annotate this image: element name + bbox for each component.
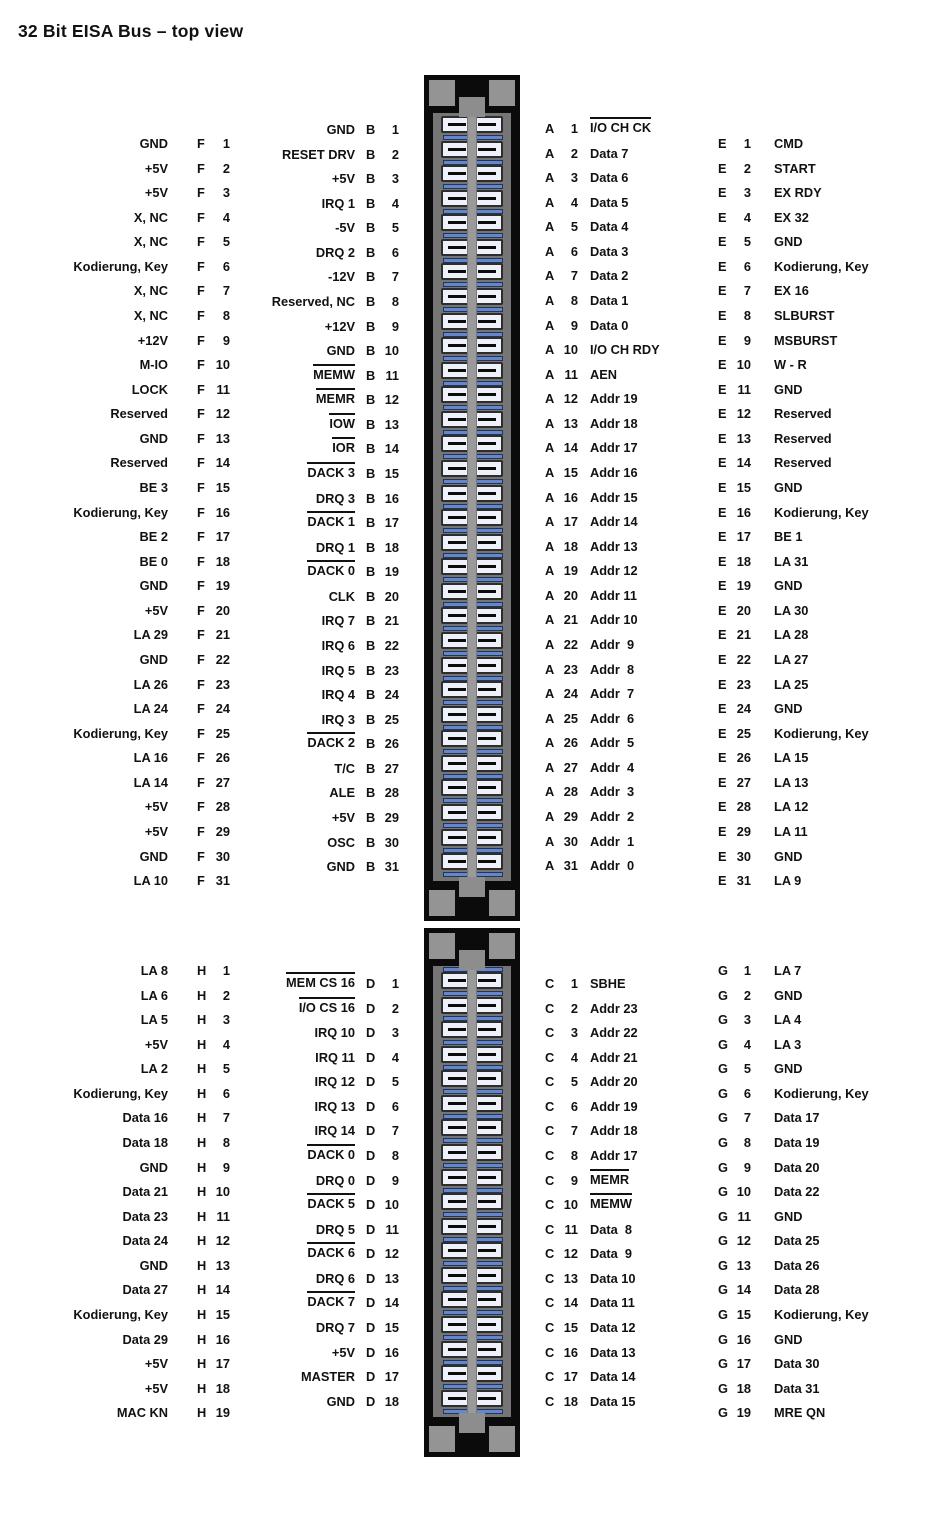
pin-id: G14 (718, 1282, 751, 1297)
pin-contact-dash (478, 172, 496, 175)
pin-row-number: 23 (737, 677, 751, 692)
pin-contact-dash (448, 344, 466, 347)
pin-id: E8 (718, 308, 751, 323)
pin-id: G8 (718, 1135, 751, 1150)
pin-contact-dash (448, 221, 466, 224)
pin-contact-dash (478, 492, 496, 495)
pin-id: G12 (718, 1233, 751, 1248)
pin-row-number: 14 (737, 1282, 751, 1297)
connector-segment-bottom (424, 928, 520, 1457)
pin-contact-dash (448, 1126, 466, 1129)
pin-id: E30 (718, 849, 751, 864)
pin-contact-dash (448, 1323, 466, 1326)
pin-contact-dash (478, 516, 496, 519)
pin-contact-dash (448, 1053, 466, 1056)
pin-contact-dash (478, 786, 496, 789)
pin-signal-label: Data 28 (774, 1282, 820, 1297)
pin-contact-dash (448, 492, 466, 495)
pin-contact-dash (448, 1176, 466, 1179)
pin-row-letter: G (718, 1110, 728, 1125)
pin-row-number: 16 (737, 1332, 751, 1347)
pin-signal-label: W - R (774, 357, 807, 372)
connector-tongue-top (459, 97, 485, 117)
pin-contact-dash (448, 713, 466, 716)
pin-contact-dash (478, 614, 496, 617)
pin-id: E19 (718, 578, 751, 593)
pin-contact-dash (448, 590, 466, 593)
pin-contact-dash (448, 541, 466, 544)
pin-row-number: 14 (737, 455, 751, 470)
pin-row-number: 12 (737, 406, 751, 421)
pin-row-letter: E (718, 234, 727, 249)
pin-contact-dash (478, 270, 496, 273)
pin-row-number: 26 (737, 750, 751, 765)
pin-id: G6 (718, 1086, 751, 1101)
pin-row-letter: E (718, 283, 727, 298)
pin-contact-dash (478, 1102, 496, 1105)
pin-contact-dash (448, 688, 466, 691)
pin-row-number: 20 (737, 603, 751, 618)
pin-id: E1 (718, 136, 751, 151)
pin-signal-label: LA 12 (774, 799, 808, 814)
pin-signal-label: MRE QN (774, 1405, 825, 1420)
pin-id: E2 (718, 161, 751, 176)
pin-contact-dash (448, 762, 466, 765)
pin-contact-dash (448, 1077, 466, 1080)
pin-id: E14 (718, 455, 751, 470)
pin-row-letter: G (718, 1061, 728, 1076)
pin-contact-dash (448, 1249, 466, 1252)
pin-row-letter: G (718, 1037, 728, 1052)
pin-row-number: 4 (744, 210, 751, 225)
pin-contact-dash (478, 1225, 496, 1228)
pin-signal-label: GND (774, 578, 802, 593)
pin-row-number: 18 (737, 1381, 751, 1396)
pin-contact-dash (448, 393, 466, 396)
pin-id: G7 (718, 1110, 751, 1125)
pin-signal-label: Kodierung, Key (774, 1307, 869, 1322)
pin-contact-dash (478, 1348, 496, 1351)
pin-id: E20 (718, 603, 751, 618)
pin-signal-label: Data 22 (774, 1184, 820, 1199)
pin-contact-dash (478, 639, 496, 642)
pin-row-letter: G (718, 1258, 728, 1273)
pin-id: E21 (718, 627, 751, 642)
pin-signal-label: LA 15 (774, 750, 808, 765)
pin-contact-dash (478, 1004, 496, 1007)
pin-id: E18 (718, 554, 751, 569)
pin-row-number: 17 (737, 1356, 751, 1371)
pin-signal-label: GND (774, 382, 802, 397)
pin-contact-dash (448, 811, 466, 814)
pin-row-number: 19 (737, 1405, 751, 1420)
pin-id: E27 (718, 775, 751, 790)
pin-row-number: 24 (737, 701, 751, 716)
key-pad (429, 1426, 455, 1452)
key-pad (429, 890, 455, 916)
pin-contact-dash (478, 1028, 496, 1031)
pin-row-letter: A (545, 121, 554, 136)
pin-contact-dash (448, 148, 466, 151)
pin-row-letter: E (718, 308, 727, 323)
pin-panel (433, 113, 511, 881)
pin-contact-dash (478, 320, 496, 323)
pin-row-letter: G (718, 1135, 728, 1150)
pin-signal-label: GND (774, 1061, 802, 1076)
pin-signal-label: LA 13 (774, 775, 808, 790)
pin-contact-dash (478, 148, 496, 151)
pin-signal-label: GND (774, 988, 802, 1003)
pin-contact-dash (448, 123, 466, 126)
pin-id: E31 (718, 873, 751, 888)
pin-row-letter: G (718, 1356, 728, 1371)
pin-id: E24 (718, 701, 751, 716)
pin-signal-label: LA 28 (774, 627, 808, 642)
pin-signal-label: START (774, 161, 816, 176)
pin-row-number: 21 (737, 627, 751, 642)
pin-contact-dash (478, 418, 496, 421)
pin-id: E11 (718, 382, 751, 397)
pin-row-letter: E (718, 652, 727, 667)
pin-row-letter: G (718, 963, 728, 978)
pin-contact-dash (448, 516, 466, 519)
pin-signal-label: Kodierung, Key (774, 505, 869, 520)
center-bar (467, 966, 477, 1417)
pin-row-number: 1 (744, 136, 751, 151)
pin-row-letter: E (718, 824, 727, 839)
pin-id: E23 (718, 677, 751, 692)
pin-contact-dash (478, 1249, 496, 1252)
center-bar (467, 113, 477, 881)
pin-id: E26 (718, 750, 751, 765)
pin-signal-label: Data 20 (774, 1160, 820, 1175)
pin-signal-label: EX 32 (774, 210, 809, 225)
connector-tongue-bottom (459, 1413, 485, 1433)
pin-row-number: 8 (744, 308, 751, 323)
pin-signal-label: Data 30 (774, 1356, 820, 1371)
pin-contact-dash (448, 664, 466, 667)
pin-id: E17 (718, 529, 751, 544)
pin-id: G10 (718, 1184, 751, 1199)
pin-row-number: 11 (737, 1209, 751, 1224)
pin-row-letter: G (718, 1184, 728, 1199)
connector-tongue-top (459, 950, 485, 970)
pin-row-letter: G (718, 1381, 728, 1396)
pin-row-letter: E (718, 603, 727, 618)
pin-contact-dash (448, 197, 466, 200)
pin-row-number: 1 (571, 121, 578, 136)
pin-contact-dash (478, 860, 496, 863)
pin-row-number: 16 (737, 505, 751, 520)
pin-row-letter: E (718, 529, 727, 544)
pin-row-letter: E (718, 480, 727, 495)
key-pad (429, 933, 455, 959)
pin-contact-dash (478, 737, 496, 740)
pin-contact-dash (448, 369, 466, 372)
pin-id: E28 (718, 799, 751, 814)
pin-signal-label: LA 7 (774, 963, 801, 978)
pin-contact-dash (478, 713, 496, 716)
pin-row-number: 3 (744, 185, 751, 200)
pin-row-letter: G (718, 1209, 728, 1224)
pin-signal-label: LA 31 (774, 554, 808, 569)
pin-signal-label: LA 27 (774, 652, 808, 667)
pin-id: G18 (718, 1381, 751, 1396)
pin-row-letter: G (718, 1233, 728, 1248)
pin-row-number: 15 (737, 1307, 751, 1322)
pin-contact-dash (478, 369, 496, 372)
pin-contact-dash (478, 123, 496, 126)
pin-contact-dash (478, 979, 496, 982)
key-pad (429, 80, 455, 106)
pin-contact-dash (448, 639, 466, 642)
pin-row-number: 29 (737, 824, 751, 839)
pin-signal-label: EX RDY (774, 185, 822, 200)
pin-row-letter: E (718, 627, 727, 642)
pin-contact-dash (478, 664, 496, 667)
pin-id: E9 (718, 333, 751, 348)
pin-contact-dash (448, 1151, 466, 1154)
pin-row-number: 31 (737, 873, 751, 888)
pin-row-letter: E (718, 799, 727, 814)
pin-id: E3 (718, 185, 751, 200)
pin-id: G13 (718, 1258, 751, 1273)
pin-row-letter: G (718, 1405, 728, 1420)
pin-contact-dash (478, 1176, 496, 1179)
pin-signal-label: Data 19 (774, 1135, 820, 1150)
pin-row-letter: G (718, 1086, 728, 1101)
pin-contact-dash (448, 172, 466, 175)
pin-row-letter: E (718, 677, 727, 692)
pin-id: E25 (718, 726, 751, 741)
pin-row-letter: E (718, 185, 727, 200)
pin-signal-label: Reserved (774, 455, 832, 470)
pin-id: G2 (718, 988, 751, 1003)
pin-id: G9 (718, 1160, 751, 1175)
pin-row-letter: G (718, 1332, 728, 1347)
pin-row-number: 10 (737, 1184, 751, 1199)
pin-signal-label: Data 31 (774, 1381, 820, 1396)
pin-contact-dash (478, 467, 496, 470)
pin-id: G19 (718, 1405, 751, 1420)
pin-row-letter: E (718, 554, 727, 569)
pin-row-number: 19 (737, 578, 751, 593)
pin-row-number: 3 (744, 1012, 751, 1027)
pin-contact-dash (448, 320, 466, 323)
pin-contact-dash (478, 590, 496, 593)
pin-signal-label: LA 30 (774, 603, 808, 618)
pin-contact-dash (448, 836, 466, 839)
pin-contact-dash (448, 270, 466, 273)
pin-row-number: 9 (744, 1160, 751, 1175)
pin-row-letter: E (718, 406, 727, 421)
pin-contact-dash (478, 1323, 496, 1326)
pin-row-number: 15 (737, 480, 751, 495)
pin-contact-dash (448, 1225, 466, 1228)
key-pad (489, 80, 515, 106)
pin-row-letter: E (718, 775, 727, 790)
pin-contact-dash (478, 1053, 496, 1056)
pin-row-number: 28 (737, 799, 751, 814)
pin-row-number: 6 (744, 259, 751, 274)
pin-row-letter: E (718, 357, 727, 372)
pin-signal-label: LA 4 (774, 1012, 801, 1027)
pin-row-letter: G (718, 1012, 728, 1027)
pin-signal-label: GND (774, 1332, 802, 1347)
pin-contact-dash (478, 688, 496, 691)
pin-row-number: 8 (744, 1135, 751, 1150)
connector-tongue-bottom (459, 877, 485, 897)
pin-id: E29 (718, 824, 751, 839)
pin-row-number: 12 (737, 1233, 751, 1248)
pin-row-number: 4 (744, 1037, 751, 1052)
pin-signal-label: GND (774, 234, 802, 249)
pin-row-number: 2 (744, 161, 751, 176)
pin-id: G15 (718, 1307, 751, 1322)
pin-signal-label: Kodierung, Key (774, 1086, 869, 1101)
pin-contact-dash (448, 1298, 466, 1301)
connector-segment-top (424, 75, 520, 921)
pin-signal-label: Kodierung, Key (774, 726, 869, 741)
key-pad (489, 1426, 515, 1452)
pin-contact-dash (448, 295, 466, 298)
pin-row-number: 27 (737, 775, 751, 790)
pin-contact-dash (478, 1151, 496, 1154)
pin-contact-dash (478, 541, 496, 544)
pin-id: G16 (718, 1332, 751, 1347)
pin-row-number: 9 (744, 333, 751, 348)
pin-signal-label: LA 11 (774, 824, 808, 839)
pin-row-number: 18 (737, 554, 751, 569)
pin-row-letter: G (718, 1282, 728, 1297)
pin-contact-dash (448, 737, 466, 740)
pin-row-number: 11 (737, 382, 751, 397)
pin-contact-dash (478, 246, 496, 249)
pin-row-number: 13 (737, 1258, 751, 1273)
pin-contact-dash (448, 442, 466, 445)
pin-contact-dash (448, 1004, 466, 1007)
pin-row-number: 2 (744, 988, 751, 1003)
pin-row-letter: E (718, 382, 727, 397)
pin-signal-label: GND (774, 1209, 802, 1224)
pin-id: E22 (718, 652, 751, 667)
pin-contact-dash (448, 860, 466, 863)
pin-id: E10 (718, 357, 751, 372)
pin-id: G1 (718, 963, 751, 978)
pin-contact-dash (478, 1274, 496, 1277)
pin-contact-dash (478, 1372, 496, 1375)
pin-signal-label: LA 9 (774, 873, 801, 888)
pin-signal-label: LA 3 (774, 1037, 801, 1052)
pin-id: E6 (718, 259, 751, 274)
pin-contact-dash (478, 344, 496, 347)
pin-contact-dash (478, 197, 496, 200)
pin-row-letter: G (718, 1160, 728, 1175)
pin-contact-dash (478, 1397, 496, 1400)
pin-row-number: 22 (737, 652, 751, 667)
pin-signal-label: I/O CH CK (590, 117, 651, 135)
pin-signal-label: Kodierung, Key (774, 259, 869, 274)
pin-id: E12 (718, 406, 751, 421)
key-pad (489, 890, 515, 916)
pin-contact-dash (448, 1028, 466, 1031)
pin-contact-dash (448, 1200, 466, 1203)
pin-row-letter: E (718, 873, 727, 888)
pin-row-letter: E (718, 333, 727, 348)
pin-contact-dash (478, 762, 496, 765)
pin-signal-label: LA 25 (774, 677, 808, 692)
pin-signal-label: Data 26 (774, 1258, 820, 1273)
pin-row-number: 13 (737, 431, 751, 446)
page-title: 32 Bit EISA Bus – top view (18, 21, 243, 42)
pin-contact-dash (448, 786, 466, 789)
pin-row-letter: G (718, 988, 728, 1003)
pin-id: G11 (718, 1209, 751, 1224)
pin-row-letter: G (718, 1307, 728, 1322)
pin-contact-dash (478, 565, 496, 568)
pin-row-letter: E (718, 849, 727, 864)
pin-row-number: 5 (744, 234, 751, 249)
pin-row-number: 25 (737, 726, 751, 741)
pin-row-letter: E (718, 136, 727, 151)
pin-row-letter: E (718, 210, 727, 225)
pin-signal-label: Data 17 (774, 1110, 820, 1125)
pin-id: E15 (718, 480, 751, 495)
pin-contact-dash (478, 1298, 496, 1301)
pin-row-number: 7 (744, 1110, 751, 1125)
pin-row-number: 6 (744, 1086, 751, 1101)
pin-signal-label: Reserved (774, 406, 832, 421)
pin-id: G17 (718, 1356, 751, 1371)
pin-signal-label: EX 16 (774, 283, 809, 298)
pin-id: E7 (718, 283, 751, 298)
pin-row-letter: E (718, 750, 727, 765)
pin-panel (433, 966, 511, 1417)
pin-row-number: 7 (744, 283, 751, 298)
pin-signal-label: GND (774, 701, 802, 716)
pin-signal-label: SLBURST (774, 308, 834, 323)
pin-contact-dash (478, 295, 496, 298)
pin-id: G4 (718, 1037, 751, 1052)
pin-id: E16 (718, 505, 751, 520)
pin-id: E13 (718, 431, 751, 446)
pin-row-number: 17 (737, 529, 751, 544)
pin-contact-dash (448, 1348, 466, 1351)
pin-signal-label: CMD (774, 136, 803, 151)
pin-row-letter: E (718, 259, 727, 274)
pin-contact-dash (448, 614, 466, 617)
pin-contact-dash (478, 1200, 496, 1203)
pin-contact-dash (478, 442, 496, 445)
pin-row-letter: E (718, 726, 727, 741)
pin-row-number: 10 (737, 357, 751, 372)
pin-contact-dash (478, 811, 496, 814)
pin-contact-dash (478, 836, 496, 839)
pin-row-letter: E (718, 701, 727, 716)
pin-contact-dash (478, 221, 496, 224)
pin-row-number: 5 (744, 1061, 751, 1076)
pin-row-letter: E (718, 161, 727, 176)
pin-contact-dash (448, 1372, 466, 1375)
pin-contact-dash (448, 565, 466, 568)
pin-id: G3 (718, 1012, 751, 1027)
pin-row-letter: E (718, 455, 727, 470)
pin-row-letter: E (718, 578, 727, 593)
key-pad (489, 933, 515, 959)
pin-row-number: 1 (744, 963, 751, 978)
pin-id: A1 (545, 121, 578, 136)
pin-contact-dash (478, 1077, 496, 1080)
